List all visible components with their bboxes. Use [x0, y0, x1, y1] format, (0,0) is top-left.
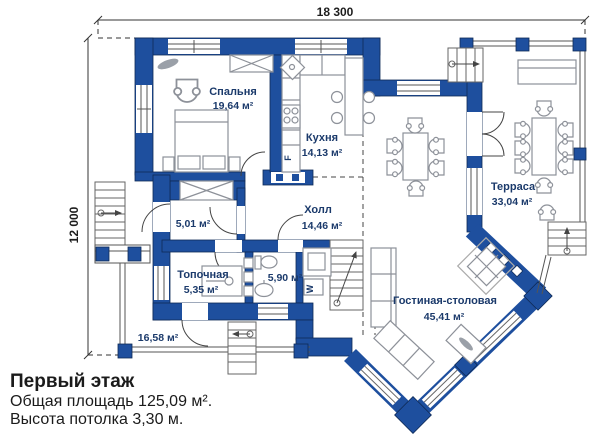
- plan-title: Первый этаж: [10, 371, 212, 393]
- room-label-living: Гостиная-столовая: [393, 295, 497, 307]
- footer: Первый этаж Общая площадь 125,09 м². Выс…: [10, 371, 212, 429]
- room-area-bathroom: 5,90 м²: [268, 272, 303, 284]
- washer-label: W: [305, 284, 315, 293]
- armchair: [174, 80, 200, 103]
- room-label-bedroom: Спальня: [209, 86, 257, 98]
- stairs-interior: [330, 240, 363, 310]
- sofa-straight: [371, 248, 396, 327]
- shower: [303, 248, 331, 276]
- room-area-boiler: 5,35 м²: [184, 284, 219, 296]
- room-area-entry: 5,01 м²: [176, 218, 211, 230]
- room-area-kitchen: 14,13 м²: [302, 147, 343, 159]
- room-area-terrace: 33,04 м²: [492, 196, 533, 208]
- dimension-width-label: 18 300: [317, 5, 354, 19]
- room-label-hall: Холл: [304, 204, 332, 216]
- bed: [163, 110, 240, 172]
- sofa-diagonal: [374, 321, 434, 379]
- stove: [282, 105, 300, 128]
- room-label-kitchen: Кухня: [306, 132, 338, 144]
- room-area-bedroom: 19,64 м²: [213, 100, 254, 112]
- floor-plan: 18 300 12 000: [0, 0, 600, 434]
- stairs-porch-terrace: [228, 322, 256, 374]
- boiler-units: [244, 258, 253, 296]
- toilet: [255, 256, 277, 269]
- room-area-living: 45,41 м²: [424, 311, 465, 323]
- entrance-porch-landing: [95, 245, 150, 263]
- stairs-terrace-entry: [448, 48, 483, 82]
- furniture-living: [371, 238, 514, 380]
- fridge-label: F: [283, 155, 293, 161]
- room-area-porch: 16,58 м²: [138, 332, 179, 344]
- floor-plan-svg: 18 300 12 000: [0, 0, 600, 434]
- wardrobe-entry: [180, 181, 233, 200]
- room-area-hall: 14,46 м²: [302, 220, 343, 232]
- dimension-height-label: 12 000: [67, 206, 81, 243]
- decor-leaf: [156, 56, 179, 71]
- stairs-terrace-side: [548, 222, 586, 255]
- room-label-boiler: Топочная: [177, 269, 228, 281]
- plan-ceiling-height: Высота потолка 3,30 м.: [10, 411, 212, 429]
- wardrobe-top: [230, 55, 273, 72]
- plan-total-area: Общая площадь 125,09 м².: [10, 393, 212, 411]
- stairs-entrance-porch: [95, 182, 125, 245]
- furniture-dining: [387, 118, 444, 196]
- room-label-terrace: Терраса: [491, 181, 536, 193]
